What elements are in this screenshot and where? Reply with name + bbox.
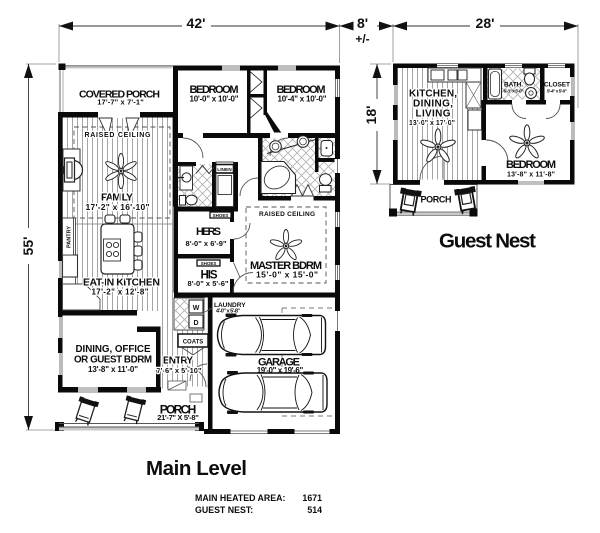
svg-text:GUEST NEST:: GUEST NEST: bbox=[195, 505, 253, 515]
svg-text:W: W bbox=[193, 305, 200, 312]
svg-text:514: 514 bbox=[307, 505, 322, 515]
svg-text:1671: 1671 bbox=[302, 493, 322, 503]
svg-text:SHOES: SHOES bbox=[213, 213, 229, 218]
svg-text:6'-3" x 5'-0": 6'-3" x 5'-0" bbox=[504, 89, 524, 94]
svg-text:28': 28' bbox=[476, 15, 495, 31]
svg-text:OR GUEST BDRM: OR GUEST BDRM bbox=[74, 355, 152, 366]
svg-text:10'-0" x 10'-0": 10'-0" x 10'-0" bbox=[190, 95, 239, 104]
svg-text:LIVING: LIVING bbox=[416, 109, 451, 120]
svg-text:19'-0" x 19'-6": 19'-0" x 19'-6" bbox=[257, 366, 304, 375]
svg-text:8'-0" x 5'-6": 8'-0" x 5'-6" bbox=[188, 279, 229, 288]
svg-text:CLOSET: CLOSET bbox=[544, 82, 570, 89]
svg-text:RAISED CEILING: RAISED CEILING bbox=[85, 132, 152, 139]
svg-text:13'-8" x 11'-8": 13'-8" x 11'-8" bbox=[507, 172, 555, 179]
svg-text:17'-7" x 7'-1": 17'-7" x 7'-1" bbox=[97, 98, 144, 107]
svg-text:4'-0" x 5'-8": 4'-0" x 5'-8" bbox=[216, 309, 240, 315]
svg-text:10'-4" x 10'-0": 10'-4" x 10'-0" bbox=[278, 95, 327, 104]
svg-text:Main Level: Main Level bbox=[146, 457, 247, 480]
svg-text:ENTRY: ENTRY bbox=[163, 356, 193, 367]
svg-text:COATS: COATS bbox=[183, 340, 204, 346]
svg-text:Guest Nest: Guest Nest bbox=[439, 230, 536, 253]
svg-text:55': 55' bbox=[20, 237, 36, 256]
svg-text:SHOES: SHOES bbox=[201, 261, 217, 266]
svg-text:8': 8' bbox=[357, 15, 368, 31]
svg-text:BATH.: BATH. bbox=[504, 82, 523, 89]
svg-text:LINEN: LINEN bbox=[217, 167, 232, 173]
svg-text:BEDROOM: BEDROOM bbox=[506, 159, 556, 171]
svg-text:PANTRY: PANTRY bbox=[67, 226, 73, 248]
svg-text:DINING, OFFICE: DINING, OFFICE bbox=[76, 344, 151, 355]
svg-text:42': 42' bbox=[187, 15, 206, 31]
svg-text:+/-: +/- bbox=[355, 32, 369, 46]
svg-text:MAIN HEATED AREA:: MAIN HEATED AREA: bbox=[195, 493, 285, 503]
svg-text:21'-7" X 5'-8": 21'-7" X 5'-8" bbox=[157, 413, 199, 422]
svg-text:HERS: HERS bbox=[196, 226, 221, 238]
svg-text:17'-2" x 16'-10": 17'-2" x 16'-10" bbox=[86, 202, 150, 212]
svg-text:PORCH: PORCH bbox=[421, 195, 452, 205]
svg-text:15'-0" x 15'-0": 15'-0" x 15'-0" bbox=[256, 270, 318, 280]
svg-text:7'-6" x 5'-10": 7'-6" x 5'-10" bbox=[157, 366, 202, 375]
svg-text:RAISED CEILING: RAISED CEILING bbox=[259, 211, 315, 218]
svg-text:13'-0" x 17'-0": 13'-0" x 17'-0" bbox=[409, 120, 455, 127]
svg-text:D: D bbox=[193, 320, 198, 327]
svg-text:13'-8" x 11'-0": 13'-8" x 11'-0" bbox=[88, 365, 138, 374]
svg-text:5'-4" x 5'-0": 5'-4" x 5'-0" bbox=[547, 89, 567, 94]
svg-text:8'-0" x 6'-9": 8'-0" x 6'-9" bbox=[186, 239, 227, 248]
svg-text:18': 18' bbox=[363, 106, 379, 125]
svg-text:17'-2" x 12'-8": 17'-2" x 12'-8" bbox=[92, 288, 149, 297]
